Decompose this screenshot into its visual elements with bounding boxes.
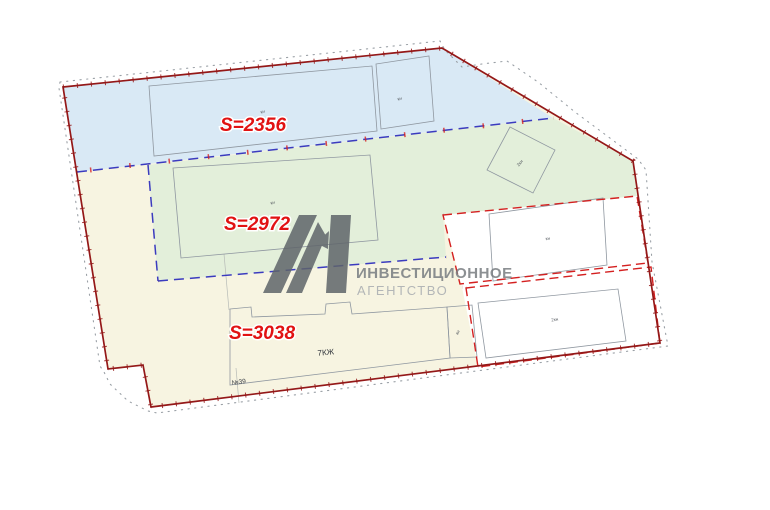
zones (63, 48, 660, 407)
area-label-south: S=3038 (229, 323, 295, 344)
label-building-parcel-lower: 2кн (551, 316, 559, 322)
label-building-residential: 7КЖ (317, 347, 335, 357)
site-plan-drawing: ИНВЕСТИЦИОННОЕ АГЕНТСТВО S=2356 S=2972 S… (0, 0, 770, 510)
area-label-north: S=2356 (220, 115, 286, 136)
watermark-text-line1: ИНВЕСТИЦИОННОЕ (356, 265, 513, 282)
watermark-text-line2: АГЕНТСТВО (357, 283, 448, 298)
site-plan-page: ИНВЕСТИЦИОННОЕ АГЕНТСТВО S=2356 S=2972 S… (0, 0, 770, 510)
area-label-middle: S=2972 (224, 214, 290, 235)
